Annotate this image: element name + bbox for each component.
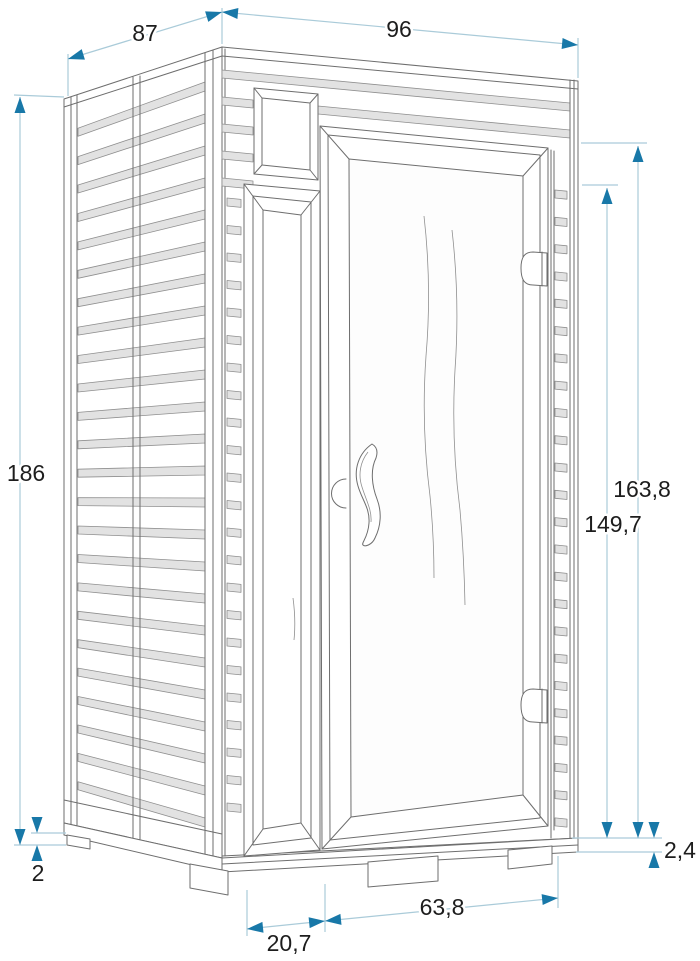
dimension-87: 87	[68, 11, 222, 59]
slat-end-cap	[227, 666, 241, 675]
dimension-label-149-7: 149,7	[584, 511, 642, 537]
arrowhead	[633, 822, 644, 838]
panel-inner	[263, 210, 301, 829]
slat-end-cap	[227, 473, 241, 482]
slat-end-cap	[555, 408, 567, 417]
slat-end-cap	[555, 518, 567, 527]
slat-end-cap	[227, 391, 241, 400]
dimension-label-2-4: 2,4	[664, 837, 696, 863]
arrowhead	[15, 829, 26, 845]
slat-end-cap	[555, 545, 567, 554]
dimension-20-7: 20,7	[247, 917, 325, 956]
sauna-dimension-drawing: 87 96 186 2 163,8	[0, 0, 700, 961]
ventilation-panel	[254, 88, 318, 180]
slat-end-cap	[555, 327, 567, 336]
slat-end-cap	[555, 763, 567, 772]
drawing-svg: 87 96 186 2 163,8	[0, 0, 700, 961]
dimension-63-8: 63,8	[325, 894, 558, 925]
dimension-label-87: 87	[132, 20, 158, 46]
slat-end-cap	[555, 190, 567, 199]
arrowhead	[32, 845, 43, 861]
slat-end-cap	[227, 583, 241, 592]
slat-end-cap	[227, 198, 241, 207]
slat-end-cap	[555, 245, 567, 254]
arrowhead	[247, 922, 264, 933]
arrowhead	[205, 11, 222, 22]
slat-end-cap	[227, 748, 241, 757]
left-wall	[64, 47, 222, 858]
dimension-163-8: 163,8	[613, 146, 671, 838]
arrowhead	[68, 49, 85, 60]
arrowhead	[542, 894, 558, 905]
door-hinge-bottom	[521, 689, 547, 723]
slat-end-cap	[227, 638, 241, 647]
slat-end-cap	[555, 272, 567, 281]
slat-end-cap	[227, 226, 241, 235]
slat-end-cap	[227, 528, 241, 537]
arrowhead	[649, 822, 660, 838]
arrowhead	[602, 188, 613, 204]
door	[320, 126, 548, 849]
arrowhead	[649, 852, 660, 868]
slat-end-cap	[227, 336, 241, 345]
dimension-149-7: 149,7	[584, 188, 642, 838]
arrowhead	[325, 914, 342, 925]
door-hinge-top	[521, 252, 547, 286]
slat-end-cap	[227, 721, 241, 730]
slat-end-cap	[227, 803, 241, 812]
slat-end-cap	[227, 776, 241, 785]
dimension-label-186: 186	[7, 460, 45, 486]
slat-end-cap	[555, 463, 567, 472]
arrowhead	[32, 817, 43, 833]
arrowhead	[562, 38, 578, 49]
hinge-shape	[521, 689, 547, 723]
slat-end-cap	[227, 501, 241, 510]
base-foot-right	[508, 846, 552, 869]
arrowhead	[602, 822, 613, 838]
dimension-label-2: 2	[32, 860, 45, 886]
sauna-cabin	[64, 47, 578, 895]
dimension-2: 2	[32, 817, 45, 886]
arrowhead	[15, 97, 26, 113]
slat-end-cap	[555, 681, 567, 690]
slat-end-cap	[555, 818, 567, 827]
slat-end-cap	[555, 627, 567, 636]
slat-end-cap	[555, 490, 567, 499]
slat-end-cap	[555, 381, 567, 390]
slat-end-cap	[227, 308, 241, 317]
slat-end-cap	[555, 354, 567, 363]
dimension-label-20-7: 20,7	[267, 930, 312, 956]
base-foot-center	[368, 856, 438, 887]
vent-inner	[262, 98, 310, 170]
dimension-label-163-8: 163,8	[613, 476, 671, 502]
slat-end-cap	[555, 299, 567, 308]
slat-end-cap	[555, 436, 567, 445]
slat-end-cap	[227, 693, 241, 702]
slat-end-cap	[555, 654, 567, 663]
slat-end-cap	[227, 556, 241, 565]
slat-end-cap	[555, 572, 567, 581]
slat-end-cap	[227, 611, 241, 620]
slat-end-cap	[555, 709, 567, 718]
dimension-96: 96	[222, 8, 578, 49]
dimension-186: 186	[7, 97, 45, 845]
dimension-2-4: 2,4	[649, 822, 697, 868]
slat-end-cap	[227, 418, 241, 427]
slat-end-cap	[555, 791, 567, 800]
front-left-panel	[244, 184, 320, 856]
door-glass	[349, 159, 523, 817]
slat-end-cap	[555, 736, 567, 745]
dimension-label-96: 96	[386, 16, 412, 42]
arrowhead	[222, 8, 238, 19]
dimension-label-63-8: 63,8	[420, 894, 465, 920]
slat-end-cap	[555, 217, 567, 226]
arrowhead	[633, 146, 644, 162]
slat-end-cap	[227, 363, 241, 372]
arrowhead	[309, 917, 325, 928]
hinge-shape	[521, 252, 547, 286]
slat-end-cap	[227, 446, 241, 455]
wall-slat	[78, 498, 205, 507]
slat-end-cap	[227, 281, 241, 290]
extension-line	[14, 95, 64, 97]
slat-end-cap	[227, 253, 241, 262]
slat-end-cap	[555, 600, 567, 609]
